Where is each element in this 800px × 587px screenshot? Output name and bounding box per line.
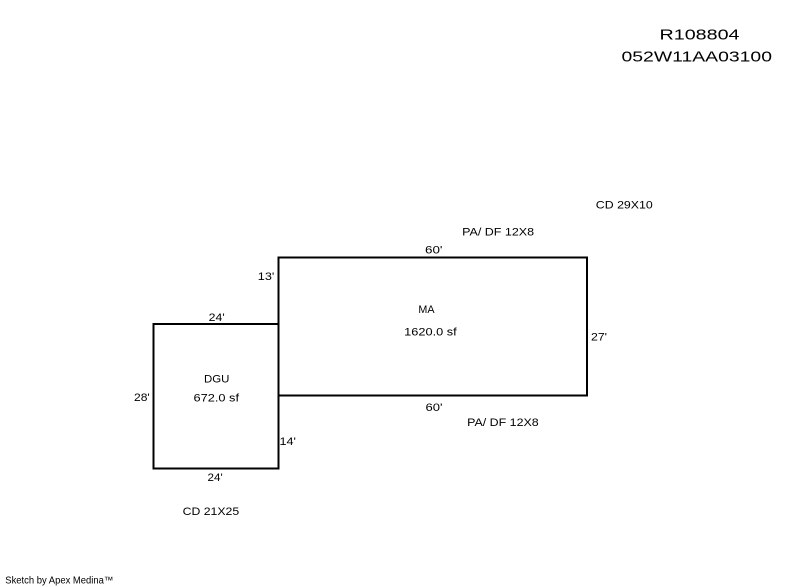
svg-text:CD 21X25: CD 21X25 xyxy=(183,506,240,518)
svg-text:CD 29X10: CD 29X10 xyxy=(596,199,653,211)
svg-text:MA: MA xyxy=(418,304,435,316)
svg-text:672.0 sf: 672.0 sf xyxy=(194,393,241,405)
svg-text:Sketch by Apex Medina™: Sketch by Apex Medina™ xyxy=(5,576,113,587)
svg-text:60': 60' xyxy=(426,402,443,414)
svg-text:28': 28' xyxy=(134,392,150,404)
svg-text:14': 14' xyxy=(280,436,296,448)
svg-text:R108804: R108804 xyxy=(660,27,740,44)
svg-text:052W11AA03100: 052W11AA03100 xyxy=(622,49,773,66)
svg-text:27': 27' xyxy=(591,332,607,344)
svg-text:1620.0 sf: 1620.0 sf xyxy=(404,326,458,338)
svg-text:24': 24' xyxy=(208,472,223,484)
svg-text:DGU: DGU xyxy=(204,374,229,386)
svg-text:PA/ DF 12X8: PA/ DF 12X8 xyxy=(467,417,539,429)
svg-text:PA/ DF 12X8: PA/ DF 12X8 xyxy=(462,226,534,238)
svg-text:13': 13' xyxy=(258,271,275,283)
svg-text:60': 60' xyxy=(425,244,443,256)
svg-text:24': 24' xyxy=(209,312,225,324)
